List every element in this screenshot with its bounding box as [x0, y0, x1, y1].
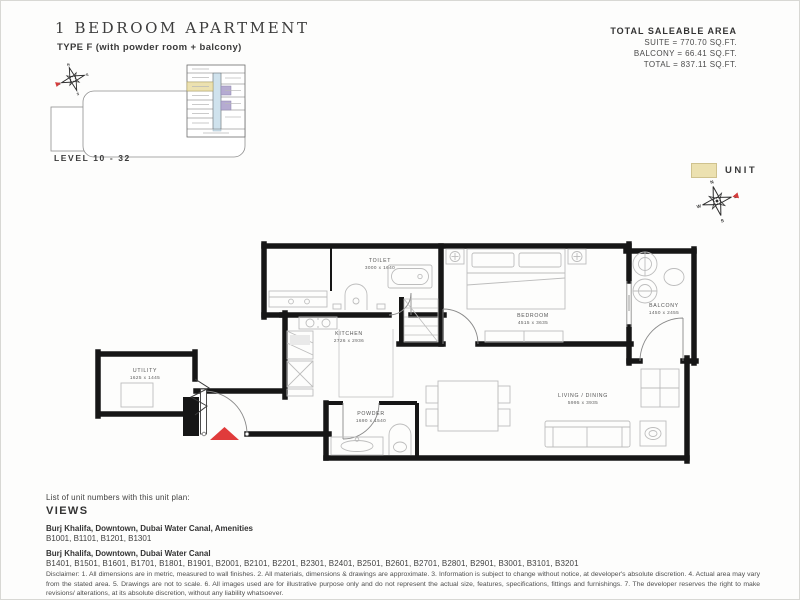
washer [121, 383, 153, 407]
keyplan-unit-grid [187, 65, 245, 137]
area-total: TOTAL = 837.11 SQ.FT. [610, 60, 737, 71]
dining-chair [498, 386, 510, 403]
svg-text:E: E [86, 72, 90, 77]
svg-text:3000 x 1640: 3000 x 1640 [365, 265, 395, 270]
pillow [472, 253, 514, 267]
compass-rose-icon: N E S W [691, 175, 744, 227]
level-label: LEVEL 10 - 32 [54, 153, 131, 163]
svg-text:4515 x 3635: 4515 x 3635 [518, 320, 548, 325]
bedroom-door-arc [443, 309, 478, 344]
wardrobe [404, 299, 438, 342]
keyplan-other-unit-cell [221, 101, 231, 110]
powder-vanity [331, 437, 383, 455]
bedroom-furniture [446, 249, 586, 342]
utility-fixtures [121, 383, 153, 407]
views-heading: VIEWS [46, 505, 88, 517]
view-group2-title: Burj Khalifa, Downtown, Dubai Water Cana… [46, 549, 211, 558]
dining-chair [426, 409, 438, 426]
view-group2-units: B1401, B1501, B1601, B1701, B1801, B1901… [46, 559, 579, 568]
room-label-balcony: BALCONY [649, 303, 679, 309]
floor-plan: TOILET 3000 x 1640 KITCHEN 2726 x 2936 B… [93, 231, 703, 471]
svg-text:S: S [76, 92, 80, 97]
unit-list-intro: List of unit numbers with this unit plan… [46, 493, 190, 502]
living-furniture [426, 369, 679, 447]
room-labels: TOILET 3000 x 1640 KITCHEN 2726 x 2936 B… [130, 258, 679, 423]
floorplan-sheet: 1 BEDROOM APARTMENT TYPE F (with powder … [0, 0, 800, 600]
dining-table [438, 381, 498, 431]
kitchen-fixtures [287, 317, 393, 397]
balcony-furniture [633, 252, 684, 303]
svg-text:N: N [710, 179, 715, 185]
svg-text:1625 x 1445: 1625 x 1445 [130, 375, 160, 380]
room-label-kitchen: KITCHEN [335, 331, 363, 337]
area-heading: TOTAL SALEABLE AREA [610, 26, 737, 36]
area-suite: SUITE = 770.70 SQ.FT. [610, 38, 737, 49]
page-subtitle: TYPE F (with powder room + balcony) [57, 42, 242, 53]
balcony-slider-door [627, 281, 631, 327]
room-label-bedroom: BEDROOM [517, 313, 549, 319]
compass-rose: N E S W [683, 175, 755, 227]
sofa [545, 421, 630, 447]
svg-text:2726 x 2936: 2726 x 2936 [334, 338, 364, 343]
room-label-living-dining: LIVING / DINING [558, 393, 608, 399]
side-table [640, 421, 666, 446]
dining-chair [426, 386, 438, 403]
svg-text:W: W [696, 203, 702, 209]
svg-text:1450 x 2455: 1450 x 2455 [649, 310, 679, 315]
saleable-area-block: TOTAL SALEABLE AREA SUITE = 770.70 SQ.FT… [610, 26, 737, 70]
room-label-utility: UTILITY [133, 368, 157, 374]
room-label-powder: POWDER [357, 411, 385, 417]
room-label-toilet: TOILET [369, 258, 391, 264]
entry-marker-triangle [210, 427, 239, 440]
view-group1-title: Burj Khalifa, Downtown, Dubai Water Cana… [46, 524, 253, 533]
svg-text:1690 x 1540: 1690 x 1540 [356, 418, 386, 423]
keyplan-corridor [213, 73, 221, 131]
closet-counter [269, 291, 327, 307]
svg-text:5995 x 3935: 5995 x 3935 [568, 400, 598, 405]
disclaimer-text: Disclaimer: 1. All dimensions are in met… [46, 570, 760, 599]
powder-wc [389, 424, 411, 455]
view-group1-units: B1001, B1101, B1201, B1301 [46, 534, 151, 543]
balcony-table [664, 269, 684, 286]
entry-door-arc [204, 391, 247, 434]
svg-text:S: S [720, 218, 724, 224]
balcony-door-arc [640, 318, 683, 361]
pillow [519, 253, 561, 267]
toilet-sink [345, 284, 367, 310]
svg-text:N: N [67, 62, 71, 67]
page-title: 1 BEDROOM APARTMENT [55, 19, 310, 37]
area-balcony: BALCONY = 66.41 SQ.FT. [610, 49, 737, 60]
dining-chair [498, 409, 510, 426]
